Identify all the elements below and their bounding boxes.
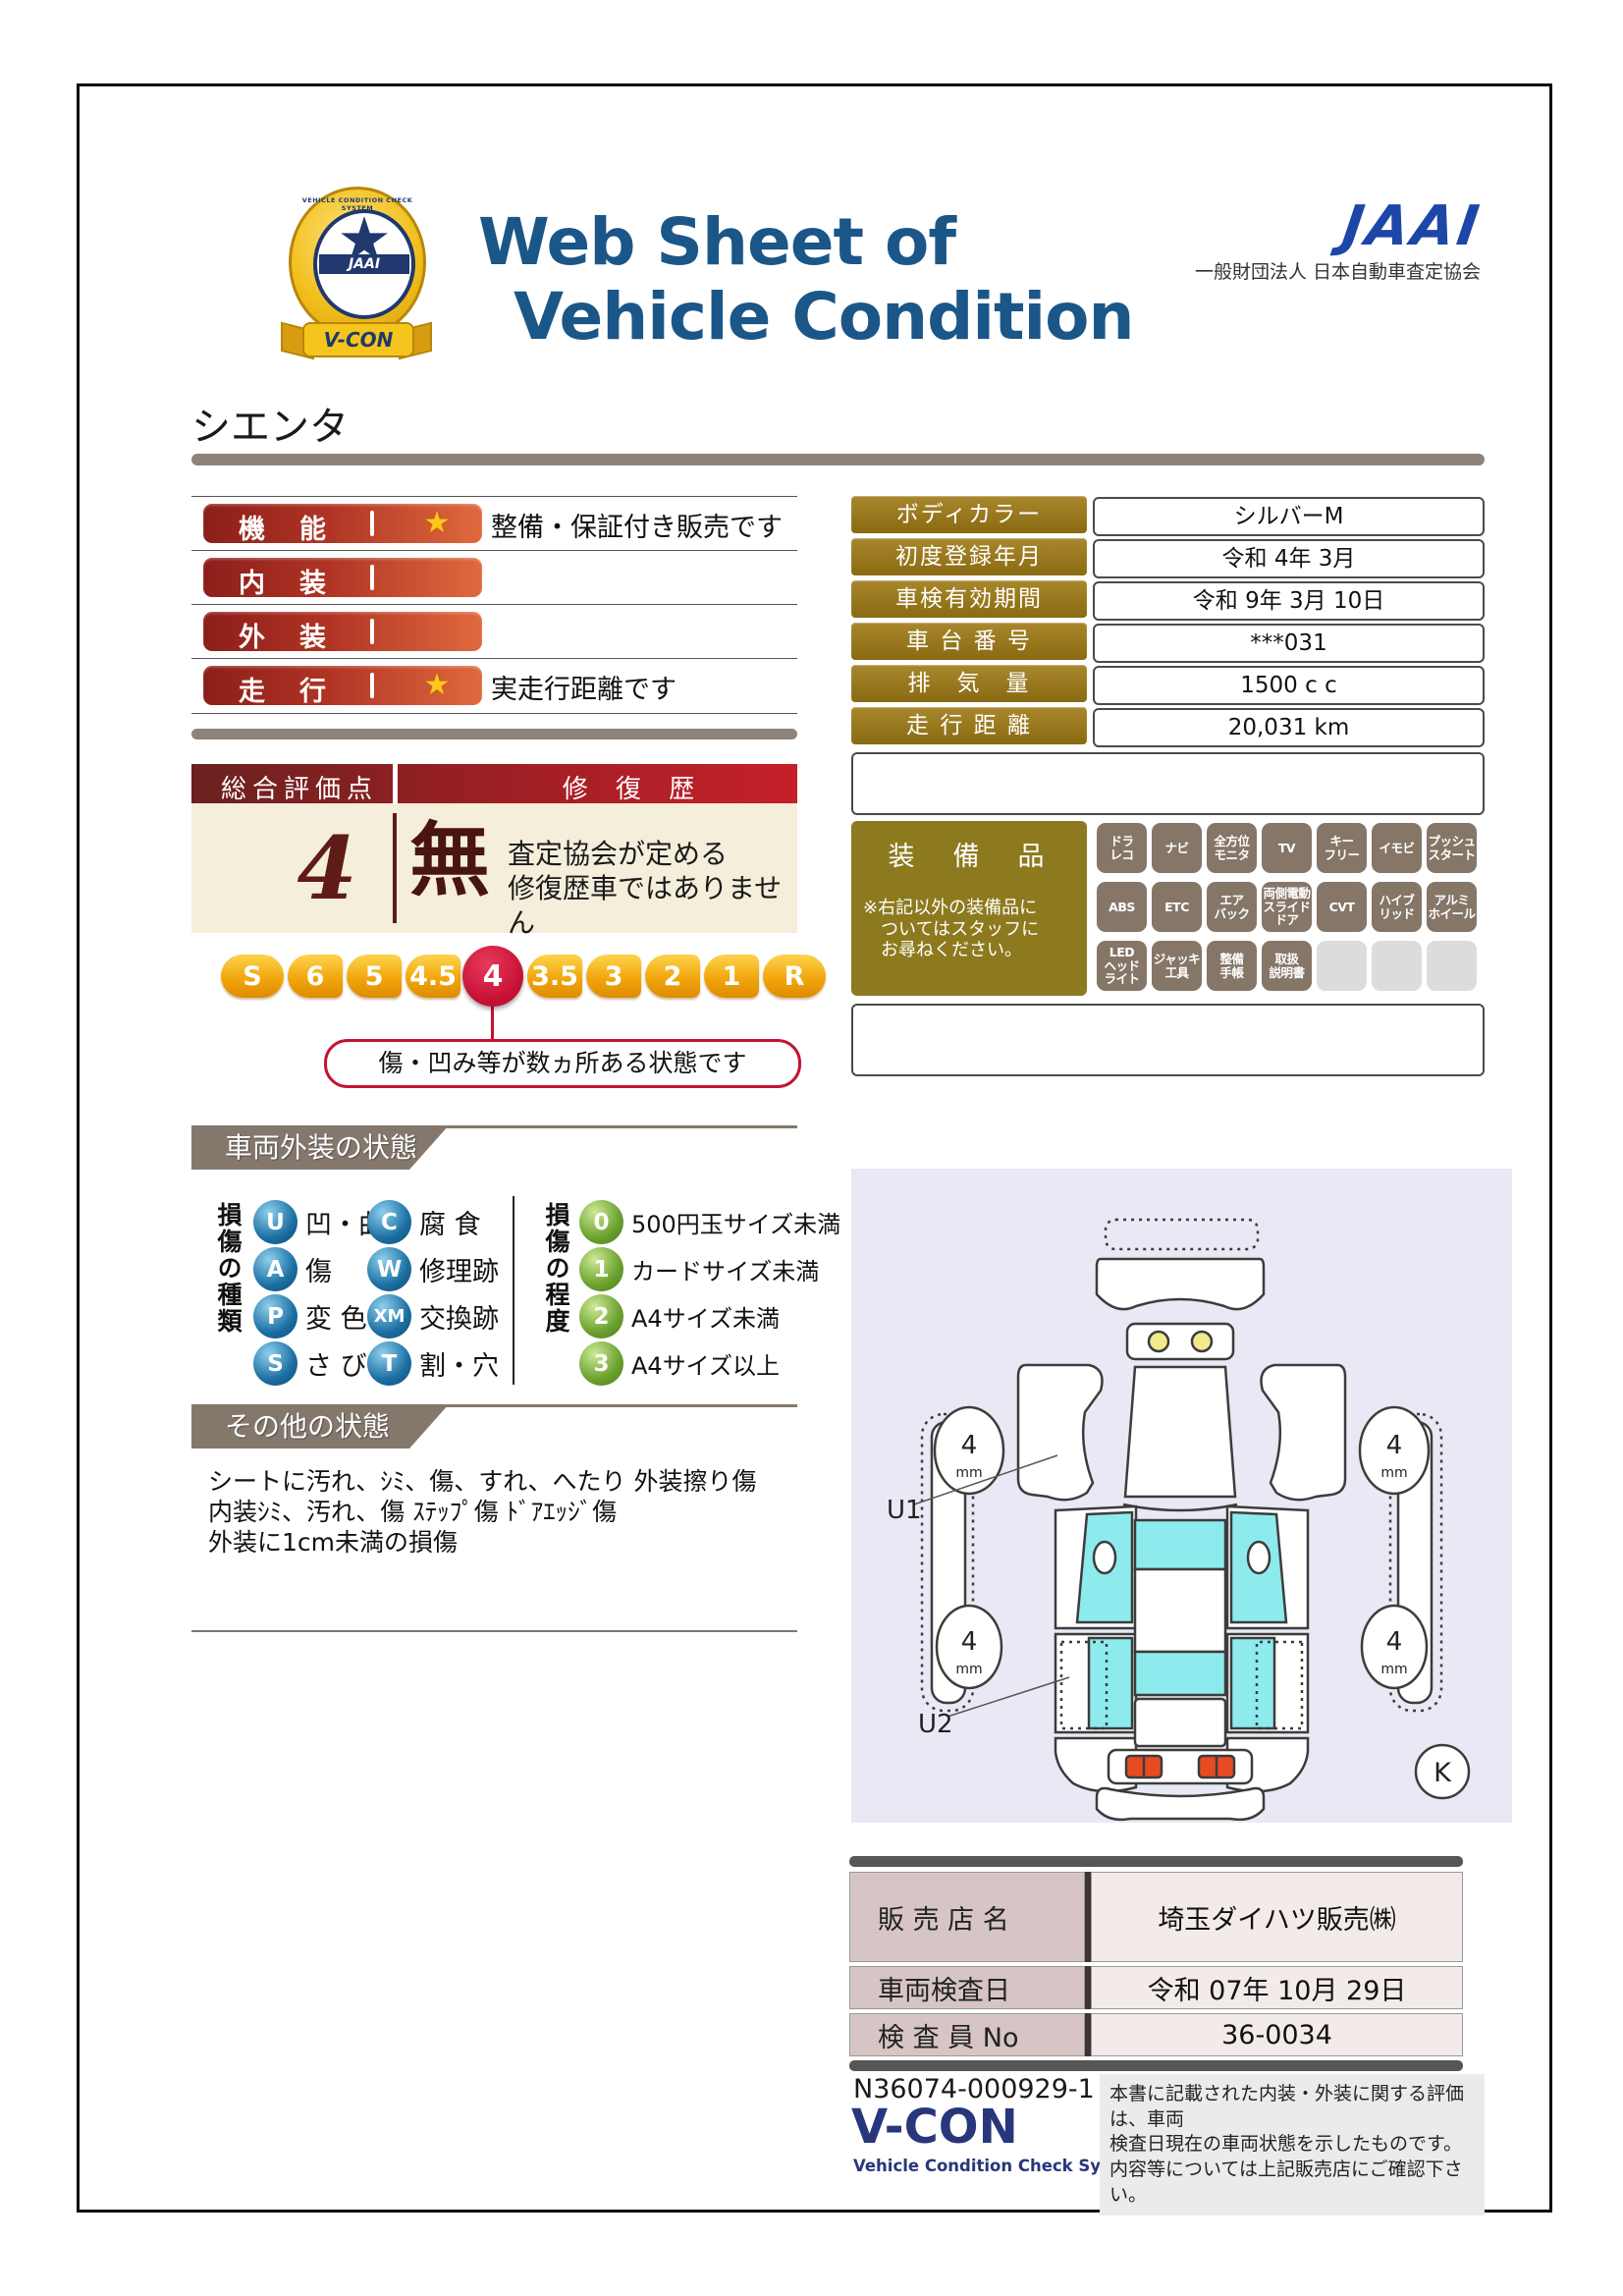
vehicle-name: シエンタ xyxy=(191,395,349,452)
equipment-badge: ドラ レコ xyxy=(1097,823,1147,873)
other-condition-line: 外装に1cm未満の損傷 xyxy=(208,1527,756,1558)
rating-tick xyxy=(370,511,374,536)
damage-kind-badge: C xyxy=(367,1200,411,1244)
other-section-underline xyxy=(191,1630,797,1632)
front-cowl xyxy=(1127,1324,1233,1359)
scale-segment-selected: 4 xyxy=(462,946,523,1007)
page-title-line1: Web Sheet of xyxy=(478,204,955,280)
damage-kind-label: 割・穴 xyxy=(419,1344,499,1383)
info-value-displacement: 1500 c c xyxy=(1093,666,1485,705)
rear-bumper xyxy=(1097,1788,1264,1820)
dealer-value: 36-0034 xyxy=(1091,2013,1463,2056)
overall-score-body: 4 無 査定協会が定める 修復歴車ではありません xyxy=(191,803,797,933)
score-scale: S 6 5 4.5 4 3.5 3 2 1 R xyxy=(221,955,826,998)
damage-degree-label: A4サイズ未満 xyxy=(631,1299,780,1334)
damage-kind-badge: A xyxy=(253,1247,298,1291)
page-title-line2: Vehicle Condition xyxy=(514,279,1133,355)
equipment-badge: プッシュ スタート xyxy=(1427,823,1477,873)
front-fender xyxy=(1018,1365,1103,1500)
equipment-badge: 全方位 モニタ xyxy=(1207,823,1257,873)
damage-degree-label: 500円玉サイズ未満 xyxy=(631,1205,840,1239)
rating-bar: 走 行 ★ xyxy=(203,666,482,705)
car-top-view: U1 U2 K 4 mm 4 mm 4 mm 4 mm xyxy=(851,1169,1512,1823)
equipment-badge: イモビ xyxy=(1372,823,1422,873)
corner-mark: K xyxy=(1434,1758,1452,1788)
equipment-badge: LED ヘッド ライト xyxy=(1097,941,1147,991)
emblem-jaai-band: JAAI xyxy=(319,254,409,274)
tailgate xyxy=(1135,1699,1225,1746)
info-label-body-color: ボディカラー xyxy=(851,496,1087,533)
scale-segment: 3 xyxy=(586,955,641,998)
equipment-empty-box xyxy=(851,1004,1485,1076)
damage-marker-u1: U1 xyxy=(887,1496,922,1525)
info-label-displacement: 排 気 量 xyxy=(851,665,1087,702)
info-label-mileage: 走 行 距 離 xyxy=(851,707,1087,744)
damage-degree-label: カードサイズ未満 xyxy=(631,1252,819,1286)
dealer-value: 埼玉ダイハツ販売㈱ xyxy=(1091,1872,1463,1962)
damage-degree-badge: 1 xyxy=(579,1247,623,1291)
rear-window xyxy=(1135,1652,1225,1695)
cowl-arc xyxy=(1123,1504,1237,1510)
dealer-label: 車両検査日 xyxy=(849,1966,1085,2009)
repair-history-note: 査定協会が定める 修復歴車ではありません xyxy=(508,837,797,940)
scale-segment: 3.5 xyxy=(527,955,582,998)
damage-kind-item: XM 交換跡 xyxy=(367,1294,499,1339)
damage-degree-badge: 0 xyxy=(579,1200,623,1244)
damage-degree-badge: 2 xyxy=(579,1294,623,1339)
equipment-badge: ABS xyxy=(1097,882,1147,932)
legend-divider xyxy=(513,1196,514,1385)
equipment-badge: アルミ ホイール xyxy=(1427,882,1477,932)
rating-tick xyxy=(370,619,374,644)
exterior-section-title: 車両外装の状態 xyxy=(191,1125,449,1170)
damage-degree-header: 損傷の程度 xyxy=(538,1202,573,1335)
damage-kind-badge: T xyxy=(367,1341,411,1386)
rating-bar: 外 装 xyxy=(203,612,482,651)
jaai-logo: JAAI xyxy=(1338,194,1485,258)
scale-segment: 5 xyxy=(347,955,402,998)
damage-kind-label: 修理跡 xyxy=(419,1250,499,1288)
equipment-badge: 両側電動 スライド ドア xyxy=(1262,882,1312,932)
info-value-mileage: 20,031 km xyxy=(1093,708,1485,747)
tread-unit: mm xyxy=(955,1465,982,1481)
equipment-badge: CVT xyxy=(1317,882,1367,932)
damage-kind-badge: S xyxy=(253,1341,298,1386)
rating-bar: 機 能 ★ xyxy=(203,504,482,543)
scale-segment: R xyxy=(763,955,826,998)
footer-disclaimer: 本書に記載された内装・外装に関する評価は、車両 検査日現在の車両状態を示したもの… xyxy=(1100,2074,1485,2215)
equipment-badge: ハイブ リッド xyxy=(1372,882,1422,932)
overall-score-title: 総合評価点 xyxy=(221,769,378,805)
roof-panel xyxy=(1135,1569,1225,1652)
other-condition-line: 内装ｼﾐ、汚れ、傷 ｽﾃｯﾌﾟ傷 ﾄﾞｱｴｯｼﾞ傷 xyxy=(208,1497,756,1527)
tread-unit: mm xyxy=(955,1662,982,1677)
star-icon: ★ xyxy=(406,668,468,702)
rating-row-exterior: 外 装 xyxy=(191,604,797,659)
dealer-table-top-bar xyxy=(849,1856,1463,1867)
dealer-table-bottom-bar xyxy=(849,2060,1463,2071)
equipment-badge: 取扱 説明書 xyxy=(1262,941,1312,991)
tread-front-right: 4 xyxy=(1386,1431,1403,1460)
overall-body-divider xyxy=(393,813,397,923)
info-label-chassis-number: 車 台 番 号 xyxy=(851,623,1087,660)
damage-kind-item: W 修理跡 xyxy=(367,1247,499,1291)
equipment-note: ※右記以外の装備品に ついてはスタッフに お尋ねください。 xyxy=(863,898,1039,961)
damage-kind-label: 変 色 xyxy=(305,1297,367,1336)
tread-rear-left: 4 xyxy=(961,1627,978,1657)
vehicle-condition-sheet: VEHICLE CONDITION CHECK SYSTEM ★ JAAI V-… xyxy=(0,0,1623,2296)
equipment-badge-empty xyxy=(1372,941,1422,991)
other-condition-text: シートに汚れ、ｼﾐ、傷、すれ、へたり 外装擦り傷 内装ｼﾐ、汚れ、傷 ｽﾃｯﾌﾟ… xyxy=(208,1466,756,1558)
overall-header-tick xyxy=(393,759,398,808)
info-value-first-registration: 令和 4年 3月 xyxy=(1093,539,1485,578)
other-section-title: その他の状態 xyxy=(191,1404,449,1449)
vcon-emblem: VEHICLE CONDITION CHECK SYSTEM ★ JAAI V-… xyxy=(283,187,430,373)
damage-degree-item: 0 500円玉サイズ未満 xyxy=(579,1200,840,1244)
roof-glass-front xyxy=(1135,1520,1225,1569)
dealer-row-inspector-no: 検 査 員 No 36-0034 xyxy=(849,2013,1463,2056)
damage-kind-item: C 腐 食 xyxy=(367,1200,481,1244)
scale-segment: 1 xyxy=(704,955,759,998)
tread-unit: mm xyxy=(1380,1465,1407,1481)
equipment-badge: 整備 手帳 xyxy=(1207,941,1257,991)
info-empty-box xyxy=(851,752,1485,815)
damage-degree-item: 3 A4サイズ以上 xyxy=(579,1341,780,1386)
emblem-ring: VEHICLE CONDITION CHECK SYSTEM ★ JAAI xyxy=(289,187,426,338)
headlight-left-icon xyxy=(1149,1332,1168,1351)
info-label-inspection-valid: 車検有効期間 xyxy=(851,580,1087,618)
mirrored-right-side xyxy=(1227,1365,1441,1791)
ratings-divider xyxy=(191,729,797,739)
equipment-box: 装 備 品 ※右記以外の装備品に ついてはスタッフに お尋ねください。 xyxy=(851,821,1087,996)
damage-kind-badge: XM xyxy=(367,1294,411,1339)
damage-degree-item: 1 カードサイズ未満 xyxy=(579,1247,819,1291)
other-condition-line: シートに汚れ、ｼﾐ、傷、すれ、へたり 外装擦り傷 xyxy=(208,1466,756,1497)
rating-label: 走 行 xyxy=(239,670,330,708)
equipment-badge-empty xyxy=(1317,941,1367,991)
damage-marker-u2: U2 xyxy=(918,1710,953,1739)
rating-label: 機 能 xyxy=(239,508,330,546)
scale-segment: 4.5 xyxy=(406,955,460,998)
dealer-row-inspection-date: 車両検査日 令和 07年 10月 29日 xyxy=(849,1966,1463,2009)
info-value-inspection-valid: 令和 9年 3月 10日 xyxy=(1093,581,1485,621)
info-label-first-registration: 初度登録年月 xyxy=(851,538,1087,575)
rating-tick xyxy=(370,673,374,698)
rating-row-mileage: 走 行 ★ 実走行距離です xyxy=(191,658,797,714)
scale-segment: 2 xyxy=(645,955,700,998)
damage-degree-item: 2 A4サイズ未満 xyxy=(579,1294,780,1339)
overall-score-header: 総合評価点 修 復 歴 xyxy=(191,764,797,803)
equipment-badge: TV xyxy=(1262,823,1312,873)
car-damage-diagram: U1 U2 K 4 mm 4 mm 4 mm 4 mm xyxy=(851,1169,1512,1823)
tread-front-left: 4 xyxy=(961,1431,978,1460)
damage-kind-item: S さ び xyxy=(253,1341,367,1386)
tread-unit: mm xyxy=(1380,1662,1407,1677)
equipment-badge: ETC xyxy=(1152,882,1202,932)
equipment-badge: ジャッキ 工具 xyxy=(1152,941,1202,991)
front-bumper xyxy=(1097,1259,1264,1309)
tread-rear-right: 4 xyxy=(1386,1627,1403,1657)
dealer-label: 検 査 員 No xyxy=(849,2013,1085,2056)
scale-segment: 6 xyxy=(288,955,343,998)
equipment-badges: ドラ レコ ナビ 全方位 モニタ TV キー フリー イモビ プッシュ スタート… xyxy=(1097,823,1477,991)
info-value-body-color: シルバーM xyxy=(1093,497,1485,536)
dealer-label: 販 売 店 名 xyxy=(849,1872,1085,1962)
rating-bar: 内 装 xyxy=(203,558,482,597)
front-bumper-dotted xyxy=(1106,1220,1258,1249)
damage-kind-label: 傷 xyxy=(305,1250,332,1288)
rating-note: 実走行距離です xyxy=(491,668,676,706)
rating-row-interior: 内 装 xyxy=(191,550,797,605)
dealer-row-shop: 販 売 店 名 埼玉ダイハツ販売㈱ xyxy=(849,1872,1463,1962)
info-value-chassis-number: ***031 xyxy=(1093,624,1485,663)
sliding-door-window xyxy=(1089,1638,1132,1728)
damage-kind-label: 交換跡 xyxy=(419,1297,499,1336)
emblem-core: ★ JAAI xyxy=(313,209,415,319)
emblem-ribbon-label: V-CON xyxy=(302,322,414,357)
damage-kind-item: P 変 色 xyxy=(253,1294,367,1339)
dealer-value: 令和 07年 10月 29日 xyxy=(1091,1966,1463,2009)
callout-connector xyxy=(491,1006,494,1041)
equipment-badge: エア バック xyxy=(1207,882,1257,932)
damage-kind-item: T 割・穴 xyxy=(367,1341,499,1386)
jaai-organization: 一般財団法人 日本自動車査定協会 xyxy=(1195,257,1481,284)
damage-kind-label: さ び xyxy=(305,1344,367,1383)
damage-kind-item: U 凹・曲 xyxy=(253,1200,385,1244)
score-callout: 傷・凹み等が数ヵ所ある状態です xyxy=(324,1039,801,1088)
rating-row-function: 機 能 ★ 整備・保証付き販売です xyxy=(191,496,797,551)
equipment-title: 装 備 品 xyxy=(851,835,1087,873)
header-divider xyxy=(191,454,1485,465)
damage-kind-badge: W xyxy=(367,1247,411,1291)
damage-kind-header: 損傷の種類 xyxy=(210,1202,245,1335)
rating-label: 内 装 xyxy=(239,562,330,600)
rating-note: 整備・保証付き販売です xyxy=(491,506,783,544)
damage-kind-badge: P xyxy=(253,1294,298,1339)
damage-kind-badge: U xyxy=(253,1200,298,1244)
vcon-footer-logo: V-CON xyxy=(851,2100,1018,2155)
headlight-right-icon xyxy=(1192,1332,1212,1351)
hood-windshield xyxy=(1125,1367,1235,1497)
damage-kind-item: A 傷 xyxy=(253,1247,332,1291)
star-icon: ★ xyxy=(406,506,468,540)
damage-kind-label: 腐 食 xyxy=(419,1203,481,1241)
repair-history-title: 修 復 歴 xyxy=(476,769,790,805)
damage-degree-badge: 3 xyxy=(579,1341,623,1386)
overall-score-value: 4 xyxy=(280,817,374,919)
rating-tick xyxy=(370,565,374,590)
equipment-badge: ナビ xyxy=(1152,823,1202,873)
door-mirror xyxy=(1094,1542,1115,1573)
damage-degree-label: A4サイズ以上 xyxy=(631,1346,780,1381)
equipment-badge-empty xyxy=(1427,941,1477,991)
emblem-ribbon: V-CON xyxy=(283,322,430,357)
scale-segment: S xyxy=(221,955,284,998)
repair-history-mark: 無 xyxy=(409,821,490,902)
equipment-badge: キー フリー xyxy=(1317,823,1367,873)
rating-label: 外 装 xyxy=(239,616,330,654)
